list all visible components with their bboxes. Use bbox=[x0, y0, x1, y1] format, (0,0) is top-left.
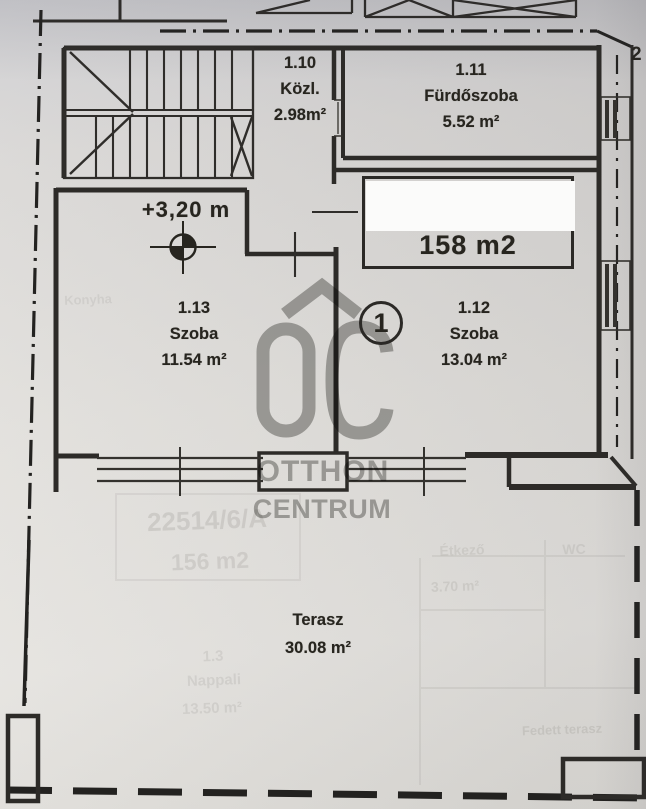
room-area: 11.54 m² bbox=[161, 347, 226, 373]
room-name: Terasz bbox=[285, 606, 351, 634]
floorplan-photo: OTTHON CENTRUM 22514/6/A 156 m2 1.3 Napp… bbox=[0, 0, 646, 809]
sheet-marker: 2 bbox=[631, 44, 642, 66]
bleed-room2-name: Étkező bbox=[439, 541, 485, 559]
room-area: 2.98m² bbox=[274, 102, 326, 128]
room-number: 1.13 bbox=[161, 295, 226, 321]
bleed-room2-area: 3.70 m² bbox=[431, 577, 480, 595]
redaction-patch bbox=[366, 181, 575, 231]
room-label-1-10: 1.10 Közl. 2.98m² bbox=[274, 50, 326, 128]
room-name: Közl. bbox=[274, 76, 326, 102]
room-number: 1.10 bbox=[274, 50, 326, 76]
bleed-lot-number: 22514/6/A bbox=[147, 503, 268, 538]
terrace-label: Terasz 30.08 m² bbox=[285, 606, 351, 662]
bleed-lot-area: 156 m2 bbox=[171, 547, 250, 577]
room-number: 1.11 bbox=[424, 57, 518, 83]
room-area: 30.08 m² bbox=[285, 634, 351, 662]
pillar-bottom-right bbox=[563, 759, 644, 797]
bleed-wc: WC bbox=[562, 541, 586, 558]
unit-area-value: 158 m2 bbox=[419, 230, 517, 261]
elevation-label: +3,20 m bbox=[142, 197, 230, 223]
room-label-1-11: 1.11 Fürdőszoba 5.52 m² bbox=[424, 57, 518, 135]
stairs bbox=[64, 48, 253, 178]
bleed-lines bbox=[116, 494, 636, 785]
bleed-room-area: 13.50 m² bbox=[182, 699, 243, 718]
boundary-dash-lines bbox=[8, 10, 646, 798]
room-name: Fürdőszoba bbox=[424, 83, 518, 109]
dimension-ticks bbox=[295, 212, 358, 277]
bleed-covered-terrace: Fedett terasz bbox=[522, 721, 603, 739]
bleed-room-id: 1.3 bbox=[202, 648, 223, 666]
level-marker-icon bbox=[150, 221, 216, 274]
bleed-room-name: Nappali bbox=[187, 671, 242, 690]
room-name: Szoba bbox=[161, 321, 226, 347]
room-area: 13.04 m² bbox=[441, 347, 507, 373]
roof-outline bbox=[33, 0, 576, 21]
room-area: 5.52 m² bbox=[424, 109, 518, 135]
unit-number-badge: 1 bbox=[359, 301, 403, 345]
room-name: Szoba bbox=[441, 321, 507, 347]
unit-number-value: 1 bbox=[373, 308, 388, 339]
bleed-kitchen: Konyha bbox=[64, 291, 112, 308]
room-label-1-12: 1.12 Szoba 13.04 m² bbox=[441, 295, 507, 373]
room-label-1-13: 1.13 Szoba 11.54 m² bbox=[161, 295, 226, 373]
room-number: 1.12 bbox=[441, 295, 507, 321]
